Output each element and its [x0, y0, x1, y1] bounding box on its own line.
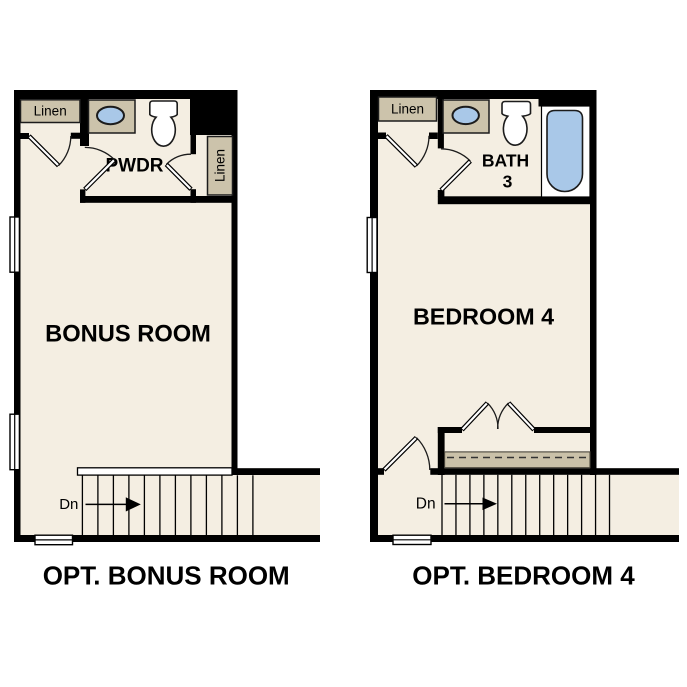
svg-text:OPT. BONUS ROOM: OPT. BONUS ROOM	[43, 561, 290, 591]
svg-text:OPT. BEDROOM 4: OPT. BEDROOM 4	[412, 561, 635, 591]
svg-text:BONUS ROOM: BONUS ROOM	[45, 322, 211, 348]
svg-text:3: 3	[503, 172, 513, 192]
svg-text:Linen: Linen	[34, 104, 67, 119]
svg-text:BATH: BATH	[482, 151, 529, 171]
svg-text:Dn: Dn	[59, 496, 78, 513]
svg-text:BEDROOM 4: BEDROOM 4	[413, 304, 554, 330]
svg-text:Dn: Dn	[416, 496, 436, 513]
svg-text:Linen: Linen	[391, 102, 424, 117]
svg-text:Linen: Linen	[213, 149, 228, 182]
